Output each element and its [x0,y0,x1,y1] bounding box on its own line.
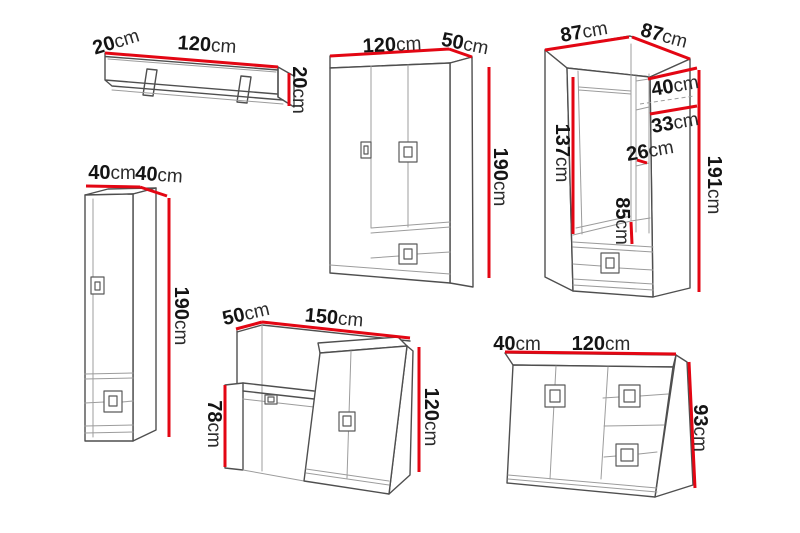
dim-chest-width: 120cm [572,334,631,354]
dim-corner-height: 191cm [704,156,724,215]
desk-drawer-lines [243,399,314,481]
column-door-handle [91,277,104,294]
desk-left-panel [225,383,243,470]
dim-wall-shelf-height: 20cm [289,66,309,114]
dim-column-width: 40cm [88,163,136,183]
shelf-bracket [237,76,251,103]
chest-door-handle [545,385,565,407]
chest-figure [505,352,695,497]
wardrobe-drawer-handle [399,244,417,264]
dim-corner-interior-height: 137cm [552,124,572,183]
chest-drawer-handle [619,385,640,407]
dim-desk-height: 78cm [204,400,224,448]
dim-corner-hanging-height: 85cm [612,197,632,245]
shelf-bracket [143,69,157,96]
wall-shelf-figure [105,53,294,107]
desk-cabinet-handle [339,412,355,431]
dim-wardrobe-width: 120cm [362,33,422,56]
wardrobe-front-face [330,63,450,283]
column-side-face [133,188,156,441]
dim-wardrobe-height: 190cm [490,148,510,207]
dressing-table-figure [225,322,419,494]
dim-column-height: 190cm [171,287,191,346]
dim-desk-width: 150cm [304,305,364,330]
wardrobe-door-handle [361,142,371,158]
corner-drawer-handle [601,253,619,273]
dim-chest-depth: 40cm [493,334,541,354]
column-cabinet-figure [85,186,169,441]
desk-top [243,383,314,399]
dim-column-depth: 40cm [135,163,184,186]
wardrobe-side-face [450,57,473,287]
furniture-dimensions-diagram: 20cm 120cm 20cm 40cm 40cm 190cm 120cm 50… [0,0,800,533]
dim-wall-shelf-width: 120cm [177,33,237,57]
dim-chest-height: 93cm [690,404,710,452]
wardrobe-door-handle [399,142,417,162]
column-drawer-handle [104,391,122,412]
wardrobe-figure [330,49,489,287]
dim-desk-cabinet-height: 120cm [421,388,441,447]
desk-drawer-handle [265,395,277,404]
chest-drawer-handle [616,444,638,466]
